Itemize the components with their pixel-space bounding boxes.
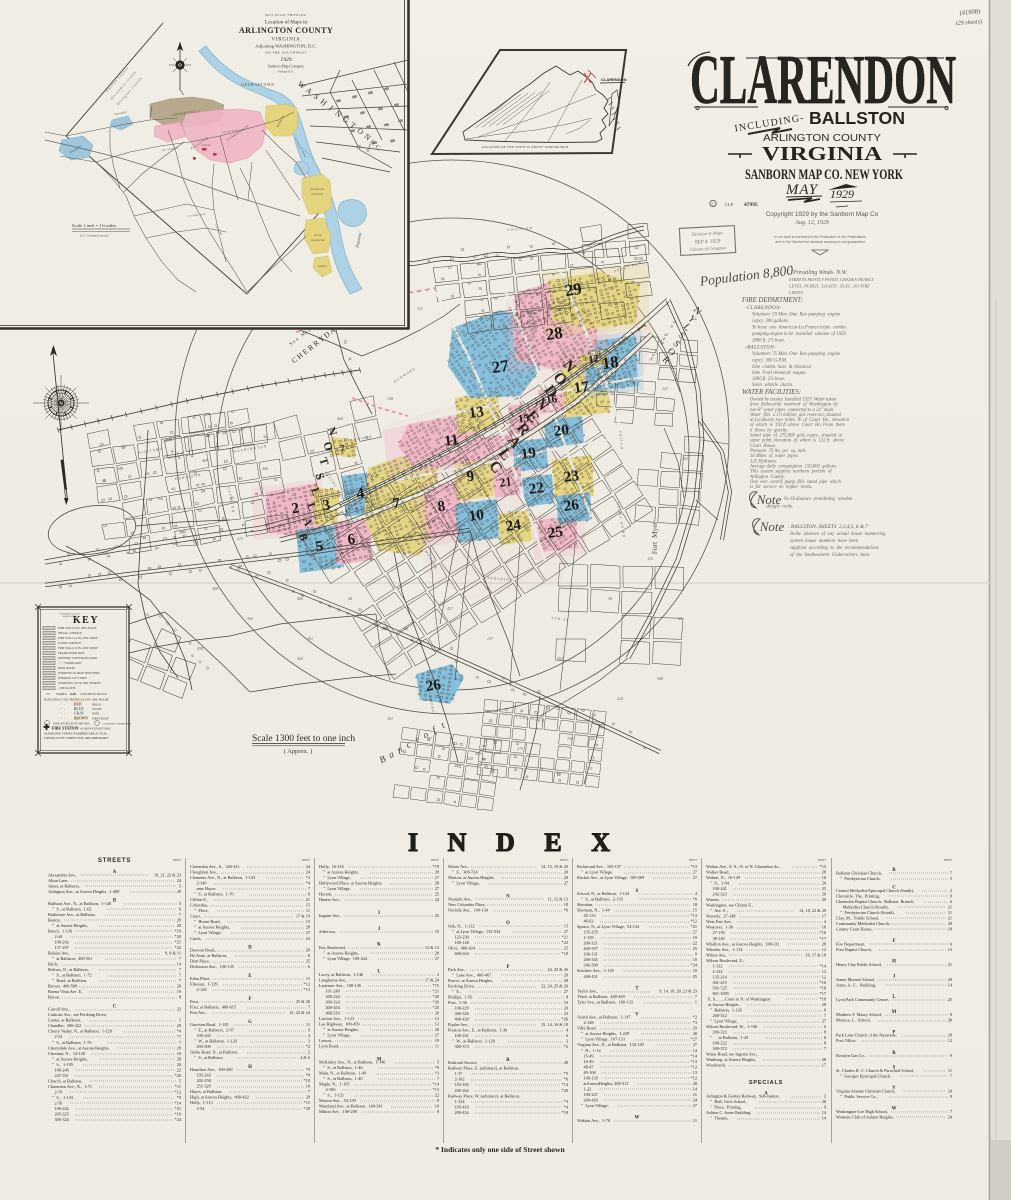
svg-text:11: 11 [693, 1118, 697, 1123]
svg-text:1800 ft. 2½ hose.: 1800 ft. 2½ hose. [752, 339, 785, 344]
svg-text:H: H [892, 960, 896, 965]
svg-text:*2: *2 [564, 1044, 568, 1049]
svg-text:Prevailing Winds- N.W.: Prevailing Winds- N.W. [792, 270, 848, 276]
svg-text:25: 25 [693, 974, 697, 979]
svg-text:8: 8 [824, 1041, 826, 1046]
svg-text:VIRGINIA: VIRGINIA [762, 143, 883, 165]
svg-text:29: 29 [564, 973, 568, 978]
svg-text:24: 24 [505, 517, 523, 535]
svg-text:FIRE WALL 12 IN. ABV. ROOF: FIRE WALL 12 IN. ABV. ROOF [58, 636, 98, 640]
svg-text:SHEET: SHEET [302, 859, 310, 862]
svg-text:*20: *20 [304, 1106, 310, 1111]
svg-text:LEVEL. PUBLIC LIGHTS : ELEC.: LEVEL. PUBLIC LIGHTS : ELEC. NO FIRE [788, 284, 870, 289]
svg-text:100-242: 100-242 [48, 1106, 69, 1111]
svg-text:11: 11 [948, 910, 952, 915]
svg-text:capcy. 300 G.P.M.: capcy. 300 G.P.M. [752, 359, 787, 364]
svg-text:IRON DOOR: IRON DOOR [58, 666, 75, 670]
svg-text:270: 270 [517, 746, 523, 751]
svg-text:427: 427 [447, 606, 454, 611]
svg-text:-BALLSTON-: -BALLSTON- [745, 346, 776, 351]
svg-text:26: 26 [563, 497, 581, 515]
svg-text:400-431: 400-431 [577, 974, 598, 979]
svg-text:SHEET: SHEET [431, 859, 439, 862]
svg-text:140: 140 [387, 396, 393, 401]
svg-text:STABLE: STABLE [56, 692, 67, 696]
svg-text:2: 2 [308, 1050, 310, 1055]
svg-text:*14: *14 [691, 1053, 698, 1058]
svg-text:123-230: 123-230 [448, 935, 469, 940]
svg-text:28: 28 [693, 1031, 697, 1036]
svg-text:- " -: - " - [58, 713, 65, 716]
svg-text:100-242: 100-242 [48, 940, 69, 945]
svg-text:FRAME PARTITION: FRAME PARTITION [58, 651, 85, 655]
svg-text:FT.MYER: FT.MYER [201, 145, 211, 147]
svg-text:268: 268 [382, 626, 388, 631]
svg-text:12: 12 [435, 1016, 439, 1021]
svg-text:20: 20 [822, 881, 826, 886]
svg-text:8: 8 [824, 1030, 826, 1035]
svg-text:BLUE: BLUE [74, 707, 84, 711]
svg-text:*21: *21 [562, 935, 568, 940]
svg-text:25: 25 [693, 946, 697, 951]
svg-text:8: 8 [950, 1012, 952, 1017]
svg-text:460: 460 [262, 466, 268, 471]
svg-text:*21: *21 [175, 940, 181, 945]
svg-text:200-312: 200-312 [706, 1013, 727, 1018]
svg-text:O: O [506, 921, 510, 926]
svg-text:8: 8 [566, 995, 568, 1000]
svg-text:LOCATION OF THE TOWN IS ABOVE: LOCATION OF THE TOWN IS ABOVE UNDERLINED [482, 145, 569, 149]
svg-text:195-243: 195-243 [190, 1073, 211, 1078]
svg-text:GRAY: GRAY [74, 712, 85, 716]
svg-text:1800 ft. 2½ hose.: 1800 ft. 2½ hose. [752, 377, 785, 382]
svg-text:1-134: 1-134 [448, 1099, 465, 1104]
svg-text:437: 437 [102, 551, 109, 556]
svg-text:28: 28 [545, 323, 564, 344]
svg-text:300-373: 300-373 [448, 1044, 469, 1049]
svg-text:29: 29 [177, 984, 181, 989]
svg-text:100-243: 100-243 [190, 1033, 211, 1038]
svg-text:2: 2 [437, 972, 439, 977]
svg-text:12 & 13: 12 & 13 [425, 945, 439, 950]
svg-text:4 & 6: 4 & 6 [300, 1055, 311, 1060]
svg-text:8: 8 [437, 1109, 439, 1114]
svg-text:FIRE DEPARTMENT:: FIRE DEPARTMENT: [741, 297, 803, 304]
svg-text:*26: *26 [433, 999, 440, 1004]
svg-text:and in Our Service but absolut: and in Our Service but absolute accuracy… [775, 240, 864, 244]
svg-text:28: 28 [564, 978, 568, 983]
svg-text:29: 29 [948, 1033, 952, 1038]
svg-text:*11: *11 [175, 1084, 181, 1089]
svg-text:capcy. 300 gallons.: capcy. 300 gallons. [752, 319, 789, 324]
svg-text:*21: *21 [433, 988, 439, 993]
svg-text:*18: *18 [820, 985, 826, 990]
svg-text:409: 409 [202, 458, 208, 463]
svg-text:FIRE STATION: FIRE STATION [52, 726, 79, 730]
svg-text:11: 11 [306, 976, 310, 981]
svg-text:29: 29 [948, 977, 952, 982]
svg-text:18: 18 [822, 925, 826, 930]
svg-text:ALTERNATE STREET NUMBERS ARE A: ALTERNATE STREET NUMBERS ARE ACTUAL [44, 732, 108, 736]
svg-text:44: 44 [348, 596, 352, 601]
svg-text:160: 160 [157, 496, 163, 501]
svg-text:400-420: 400-420 [448, 1017, 469, 1022]
svg-text:17: 17 [573, 379, 591, 397]
svg-text:2-134: 2-134 [706, 969, 723, 974]
svg-text:20: 20 [553, 422, 570, 440]
svg-text:5: 5 [179, 901, 181, 906]
svg-text:600-634: 600-634 [448, 951, 470, 956]
svg-text:19: 19 [435, 1038, 439, 1043]
svg-text:RED: RED [74, 703, 82, 707]
svg-text:28: 28 [177, 923, 181, 928]
svg-text:21: 21 [948, 962, 952, 967]
svg-text:9: 9 [695, 952, 697, 957]
svg-text:25: 25 [948, 997, 952, 1002]
svg-text:ARLINGTON COUNTY: ARLINGTON COUNTY [239, 26, 333, 35]
svg-text:KEY: KEY [73, 615, 99, 626]
svg-text:406-516: 406-516 [319, 1011, 341, 1016]
svg-text:*25: *25 [433, 1005, 439, 1010]
svg-text:28: 28 [564, 875, 568, 880]
svg-text:5: 5 [950, 876, 952, 881]
svg-text:25 & 26: 25 & 26 [296, 999, 311, 1004]
svg-text:*24: *24 [175, 1117, 182, 1122]
svg-text:3: 3 [566, 1039, 568, 1044]
svg-text:N: N [506, 894, 510, 899]
svg-text:No Ordinance prohibiting woo: No Ordinance prohibiting wooden [783, 497, 853, 502]
svg-text:R: R [892, 1051, 896, 1056]
svg-text:383: 383 [172, 541, 178, 546]
svg-text:*24: *24 [691, 963, 698, 968]
svg-text:STREETS MOSTLY PAVED. GRADES N: STREETS MOSTLY PAVED. GRADES NEARLY [789, 277, 874, 282]
svg-text:13: 13 [948, 947, 952, 952]
svg-text:WASHINGTON: WASHINGTON [311, 239, 325, 242]
svg-text:23: 23 [177, 1007, 181, 1012]
svg-text:*13: *13 [691, 1059, 697, 1064]
svg-text:13: 13 [822, 969, 826, 974]
svg-text:12: 12 [822, 974, 826, 979]
svg-text:29: 29 [822, 897, 826, 902]
svg-text:* Indicates only one side of S: * Indicates only one side of Street show… [435, 1145, 565, 1154]
svg-text:56: 56 [608, 596, 612, 601]
svg-text:11: 11 [306, 1022, 310, 1027]
svg-text:19: 19 [693, 935, 697, 940]
svg-text:Location of Maps in: Location of Maps in [265, 19, 308, 26]
svg-text:P: P [507, 965, 510, 970]
svg-text:*16: *16 [820, 980, 827, 985]
svg-text:(U.S. Geological Survey): (U.S. Geological Survey) [80, 235, 108, 238]
svg-text:*12: *12 [691, 1075, 697, 1080]
svg-text:29: 29 [564, 279, 583, 300]
svg-text:247-351: 247-351 [48, 1073, 69, 1078]
svg-text:18: 18 [948, 927, 952, 932]
svg-text:*10: *10 [562, 1110, 568, 1115]
svg-text:STONE: STONE [92, 707, 102, 711]
svg-text:One Ford chemical wagon.: One Ford chemical wagon. [752, 371, 807, 376]
svg-text:supplied according to the: supplied according to the recommendation… [790, 546, 879, 551]
svg-text:*26: *26 [562, 1017, 569, 1022]
svg-text:CLF: CLF [725, 202, 734, 207]
svg-text:A: A [113, 870, 117, 875]
svg-text:15: 15 [306, 919, 310, 924]
svg-text:27: 27 [491, 356, 510, 377]
svg-text:BROWN: BROWN [74, 716, 88, 720]
svg-text:-CLARENDON-: -CLARENDON- [745, 306, 782, 311]
svg-text:301-415: 301-415 [706, 980, 727, 985]
svg-text:2-128: 2-128 [190, 987, 206, 992]
svg-text:11: 11 [443, 432, 459, 450]
svg-text:*22: *22 [175, 945, 181, 950]
svg-text:I: I [378, 911, 380, 916]
svg-text:of the Southeastern Underwr: of the Southeastern Underwriters Assn. [790, 553, 870, 558]
svg-text:ADDISON: ADDISON [317, 265, 327, 268]
svg-text:18: 18 [601, 352, 620, 373]
svg-text:VIRGINIA: VIRGINIA [271, 38, 300, 43]
svg-text:46-62: 46-62 [577, 919, 593, 924]
svg-text:21: 21 [306, 897, 310, 902]
svg-text:28: 28 [822, 870, 826, 875]
svg-text:293-509: 293-509 [190, 1044, 211, 1049]
svg-text:20: 20 [564, 1006, 568, 1011]
svg-text:100-241: 100-241 [448, 1033, 469, 1038]
svg-text:200-345: 200-345 [577, 957, 598, 962]
svg-text:SHEET: SHEET [689, 859, 697, 862]
svg-text:*18: *18 [820, 997, 826, 1002]
svg-text:9: 9 [950, 1094, 952, 1099]
svg-text:*19: *19 [175, 929, 181, 934]
svg-text:5: 5 [437, 1060, 439, 1065]
svg-text:18: 18 [693, 968, 697, 973]
svg-text:YELLOW: YELLOW [76, 698, 92, 702]
svg-text:173: 173 [607, 286, 613, 291]
svg-text:28: 28 [822, 941, 826, 946]
svg-text:*21: *21 [175, 1106, 181, 1111]
svg-text:13: 13 [435, 1022, 439, 1027]
svg-text:408: 408 [212, 586, 218, 591]
svg-text:shingle roofs.: shingle roofs. [766, 505, 793, 510]
svg-text:M: M [892, 1010, 897, 1015]
svg-text:2-54: 2-54 [190, 1106, 205, 1111]
svg-text:29: 29 [306, 1095, 310, 1100]
svg-text:200-224: 200-224 [319, 994, 341, 999]
svg-text:G: G [248, 1020, 252, 1025]
svg-text:SANBORN MAP CO. NEW YORK: SANBORN MAP CO. NEW YORK [745, 167, 904, 183]
svg-text:In the absence of any actu: In the absence of any actual house numbe… [789, 532, 886, 537]
svg-text:100-130: 100-130 [577, 1075, 598, 1080]
svg-text:123: 123 [662, 386, 668, 391]
svg-text:*13: *13 [304, 987, 310, 992]
svg-text:*12: *12 [304, 982, 310, 987]
svg-text:*22: *22 [562, 940, 568, 945]
svg-text:103-182: 103-182 [448, 1082, 469, 1087]
svg-text:27-139: 27-139 [706, 930, 725, 935]
svg-text:*5: *5 [564, 1071, 568, 1076]
svg-text:2: 2 [950, 888, 952, 893]
svg-text:To have one American-La Fran: To have one American-La France triple co… [752, 326, 847, 331]
svg-text:*8: *8 [306, 1073, 310, 1078]
svg-text:SHEET: SHEET [560, 859, 568, 862]
svg-text:300-372: 300-372 [706, 1046, 727, 1051]
svg-text:300-326: 300-326 [448, 1011, 470, 1016]
svg-text:100-222: 100-222 [706, 1041, 727, 1046]
svg-text:*17: *17 [820, 936, 827, 941]
svg-text:*10: *10 [304, 1078, 310, 1083]
svg-text:*27: *27 [691, 1037, 698, 1042]
svg-text:156: 156 [567, 736, 573, 741]
svg-text:22: 22 [177, 1067, 181, 1072]
svg-text:400-454: 400-454 [319, 1005, 341, 1010]
svg-text:CLARENDON: CLARENDON [601, 77, 627, 82]
svg-text:28: 28 [306, 925, 310, 930]
svg-text:AUTOMATIC SPRINKLERS: AUTOMATIC SPRINKLERS [102, 722, 132, 725]
svg-text:137-297: 137-297 [48, 945, 70, 950]
svg-text:801-1005: 801-1005 [706, 991, 729, 996]
svg-text:Pelham N.Y.: Pelham N.Y. [278, 70, 294, 74]
svg-text:2-148: 2-148 [577, 1020, 593, 1025]
svg-text:19: 19 [435, 929, 439, 934]
svg-text:L: L [892, 995, 895, 1000]
svg-text:242-323: 242-323 [706, 892, 727, 897]
svg-text:WINDOWS & IRON SHUTTERS: WINDOWS & IRON SHUTTERS [58, 671, 100, 675]
svg-text:348: 348 [117, 466, 123, 471]
svg-text:9: 9 [824, 1105, 826, 1110]
svg-text:323: 323 [417, 306, 423, 311]
svg-text:9: 9 [950, 893, 952, 898]
svg-text:WINDOW 1ST STORY: WINDOW 1ST STORY [58, 676, 88, 680]
svg-text:ARLINGTON: ARLINGTON [310, 188, 325, 191]
svg-text:25: 25 [306, 959, 310, 964]
svg-text:229: 229 [537, 766, 543, 771]
svg-text:R: R [506, 1058, 510, 1063]
svg-text:ARE FRAME: ARE FRAME [92, 698, 109, 702]
svg-text:101: 101 [387, 716, 393, 721]
svg-text:9: 9 [437, 1098, 439, 1103]
svg-text:15: 15 [693, 908, 697, 913]
svg-text:1-139: 1-139 [577, 935, 593, 940]
svg-text:*9: *9 [177, 1095, 181, 1100]
svg-text:Volunteer. 59 Men. One Reo pu: Volunteer. 59 Men. One Reo pumping engin… [752, 313, 841, 318]
svg-text:INDICATE RELATIVE HEIGHTS: INDICATE RELATIVE HEIGHTS [53, 722, 90, 725]
svg-text:*13: *13 [433, 1087, 439, 1092]
svg-text:47995: 47995 [744, 202, 758, 208]
svg-text:16-49: 16-49 [577, 1059, 593, 1064]
svg-text:SHEET: SHEET [173, 859, 181, 862]
svg-text:*12: *12 [691, 1064, 697, 1069]
svg-text:422: 422 [682, 456, 688, 461]
svg-text:In our work is exercised in th: In our work is exercised in the Producti… [774, 235, 866, 239]
svg-text:29: 29 [177, 889, 181, 894]
svg-text:5: 5 [179, 883, 181, 888]
svg-text:300-324: 300-324 [319, 999, 341, 1004]
svg-text:2-44: 2-44 [48, 934, 63, 939]
svg-text:N: N [59, 402, 63, 407]
svg-text:MAY: MAY [785, 182, 819, 198]
svg-text:301: 301 [307, 636, 313, 641]
svg-text:BRICK: BRICK [92, 703, 102, 707]
svg-text:28: 28 [948, 921, 952, 926]
svg-text:220: 220 [467, 756, 473, 761]
svg-text:224: 224 [617, 696, 623, 701]
svg-text:28: 28 [435, 881, 439, 886]
svg-text:8: 8 [824, 1008, 826, 1013]
svg-text:F: F [249, 997, 252, 1002]
svg-text:Copyright 1929 by the Sanborn: Copyright 1929 by the Sanborn Map Co [766, 211, 879, 218]
svg-text:V: V [635, 1012, 639, 1017]
svg-text:213: 213 [237, 536, 243, 541]
svg-text:48-47: 48-47 [577, 1064, 594, 1069]
svg-text:One combn. hose & chemical: One combn. hose & chemical [752, 365, 812, 370]
svg-text:400-507: 400-507 [577, 946, 599, 951]
svg-text:- " - "STANDARD": - " - "STANDARD" [58, 661, 83, 665]
svg-text:*9: *9 [306, 1067, 310, 1072]
svg-text:501-725: 501-725 [706, 985, 727, 990]
svg-text:26: 26 [425, 677, 443, 695]
svg-text:W: W [635, 1116, 640, 1121]
svg-text:20: 20 [435, 1011, 439, 1016]
svg-text:KEY PLAN SHOWING: KEY PLAN SHOWING [266, 13, 307, 17]
svg-text:10: 10 [693, 957, 697, 962]
svg-text:K: K [377, 943, 381, 948]
svg-text:15: 15 [564, 923, 568, 928]
svg-text:111: 111 [587, 766, 592, 771]
svg-text:20: 20 [177, 1062, 181, 1067]
svg-text:100-131: 100-131 [577, 952, 598, 957]
svg-text:49-106: 49-106 [577, 1070, 596, 1075]
svg-text:*15: *15 [304, 1100, 310, 1105]
svg-text:WOOD CORNICE: WOOD CORNICE [58, 641, 81, 645]
svg-text:( Approx. ): ( Approx. ) [284, 748, 313, 755]
svg-text:17 & 19: 17 & 19 [296, 914, 310, 919]
svg-text:FIRE PROOF: FIRE PROOF [92, 716, 109, 720]
svg-text:AS SHOWN ON KEY MAP: AS SHOWN ON KEY MAP [80, 727, 111, 730]
svg-text:F: F [893, 939, 896, 944]
svg-text:SHEET: SHEET [944, 859, 952, 862]
svg-text:*20: *20 [175, 934, 181, 939]
svg-text:*19: *19 [175, 1112, 181, 1117]
svg-text:Aug. 12, 1929: Aug. 12, 1929 [794, 220, 829, 226]
svg-text:12: 12 [822, 947, 826, 952]
svg-text:: BALLSTON. SHEETS 2,3,4,5, 6: : BALLSTON. SHEETS 2,3,4,5, 6 & 7 [788, 523, 868, 530]
svg-text:11: 11 [435, 1044, 439, 1049]
svg-text:W: W [892, 1107, 897, 1112]
svg-text:200-321: 200-321 [577, 941, 598, 946]
svg-text:Sanborn Map Company: Sanborn Map Company [268, 65, 304, 69]
svg-text:45-133: 45-133 [577, 913, 596, 918]
svg-text:*2: *2 [306, 875, 310, 880]
svg-text:100-241: 100-241 [706, 886, 727, 891]
svg-text:*14: *14 [175, 1101, 182, 1106]
svg-text:438: 438 [197, 646, 203, 651]
svg-text:JUNCTION: JUNCTION [311, 194, 323, 196]
svg-text:29: 29 [177, 1045, 181, 1050]
svg-text:*9: *9 [435, 1065, 439, 1070]
svg-text:18: 18 [564, 902, 568, 907]
svg-text:20: 20 [564, 870, 568, 875]
svg-text:(41908): (41908) [959, 8, 980, 16]
svg-text:- " -: - " - [58, 704, 65, 707]
svg-text:C: C [113, 1004, 117, 1009]
svg-text:6.30: 6.30 [70, 692, 76, 696]
svg-text:21: 21 [498, 474, 512, 490]
svg-text:205-325: 205-325 [48, 1112, 69, 1117]
svg-text:1929: 1929 [280, 57, 291, 63]
svg-text:28: 28 [435, 1027, 439, 1032]
svg-text:*12: *12 [691, 919, 697, 924]
svg-text:28: 28 [822, 1002, 826, 1007]
svg-text:H: H [248, 1065, 252, 1070]
svg-text:*15: *15 [433, 983, 439, 988]
